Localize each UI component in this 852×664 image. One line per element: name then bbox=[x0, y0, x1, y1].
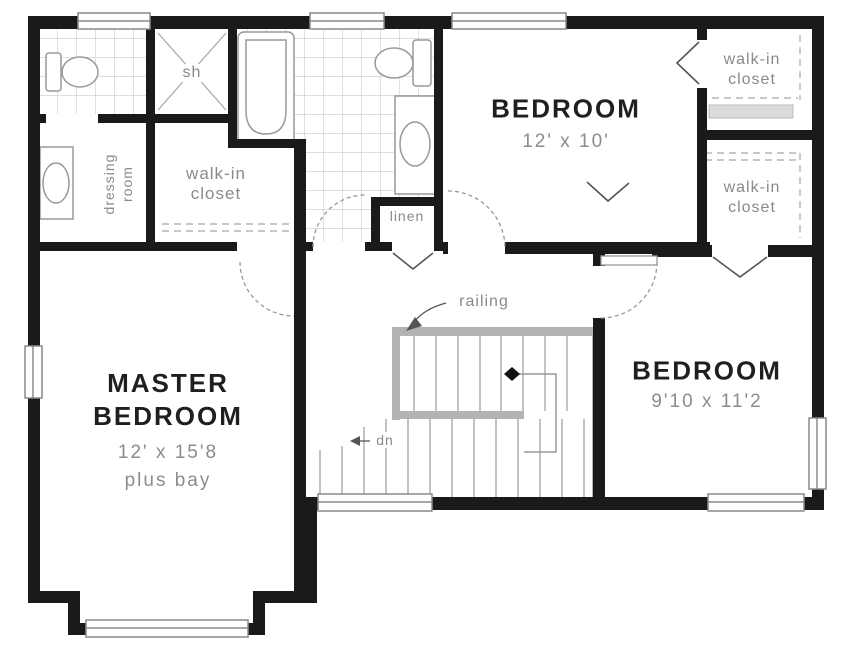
window bbox=[78, 13, 150, 29]
staircase bbox=[320, 327, 600, 497]
window bbox=[318, 494, 432, 511]
door-leaf-bedroom2 bbox=[601, 256, 657, 265]
door-arc-bedroom2 bbox=[601, 262, 657, 318]
room-dims-bedroom-top: 12' x 10' bbox=[522, 131, 610, 153]
closet-tr-line1: walk-in bbox=[724, 51, 781, 68]
room-dims-bedroom-right: 9'10 x 11'2 bbox=[651, 391, 762, 413]
vanity-sink-dressing bbox=[40, 147, 73, 219]
annotation-dn: dn bbox=[373, 432, 397, 448]
room-label-bedroom-right: BEDROOM bbox=[632, 355, 782, 388]
floor-plan: sh dressingroom walk-incloset linen BEDR… bbox=[0, 0, 852, 664]
stair-direction-diamond bbox=[504, 367, 520, 381]
room-note-master-bedroom: plus bay bbox=[125, 470, 212, 492]
annotation-railing: railing bbox=[459, 293, 509, 311]
closet-tr-line2: closet bbox=[728, 71, 776, 88]
window bbox=[809, 418, 826, 489]
chevron-linen bbox=[393, 253, 433, 269]
bathtub bbox=[238, 32, 294, 144]
closet-r-line2: closet bbox=[728, 199, 776, 216]
dn-arrowhead bbox=[350, 436, 360, 446]
room-label-linen: linen bbox=[390, 208, 425, 224]
window bbox=[25, 346, 42, 398]
room-label-bedroom-top: BEDROOM bbox=[491, 93, 641, 126]
window bbox=[452, 13, 566, 29]
chevron-closet-right bbox=[713, 257, 767, 277]
room-label-walk-in-closet-left: walk-incloset bbox=[186, 164, 246, 204]
vanity-sink-main-bath bbox=[395, 96, 436, 194]
window-bay bbox=[86, 620, 248, 637]
chevron-hall bbox=[587, 182, 629, 201]
door-arc-bedroom1 bbox=[448, 191, 505, 248]
room-label-dressing-room: dressingroom bbox=[100, 154, 136, 215]
window bbox=[310, 13, 384, 29]
room-label-walk-in-closet-right: walk-incloset bbox=[724, 178, 781, 218]
closet-left-line2: closet bbox=[191, 184, 241, 203]
room-label-shower: sh bbox=[180, 64, 205, 82]
room-label-walk-in-closet-top-right: walk-incloset bbox=[724, 50, 781, 90]
closet-r-line1: walk-in bbox=[724, 179, 781, 196]
window bbox=[708, 494, 804, 511]
dressing-line1: dressing bbox=[101, 154, 117, 215]
dressing-line2: room bbox=[119, 166, 135, 202]
chevron-closet-top-right bbox=[677, 42, 699, 84]
master-line2: BEDROOM bbox=[93, 401, 243, 431]
closet-left-line1: walk-in bbox=[186, 164, 246, 183]
master-line1: MASTER bbox=[107, 368, 229, 398]
room-label-master-bedroom: MASTERBEDROOM bbox=[93, 367, 243, 433]
door-arc-master bbox=[240, 262, 294, 316]
floor-plan-drawing bbox=[0, 0, 852, 664]
room-dims-master-bedroom: 12' x 15'8 bbox=[118, 442, 218, 464]
